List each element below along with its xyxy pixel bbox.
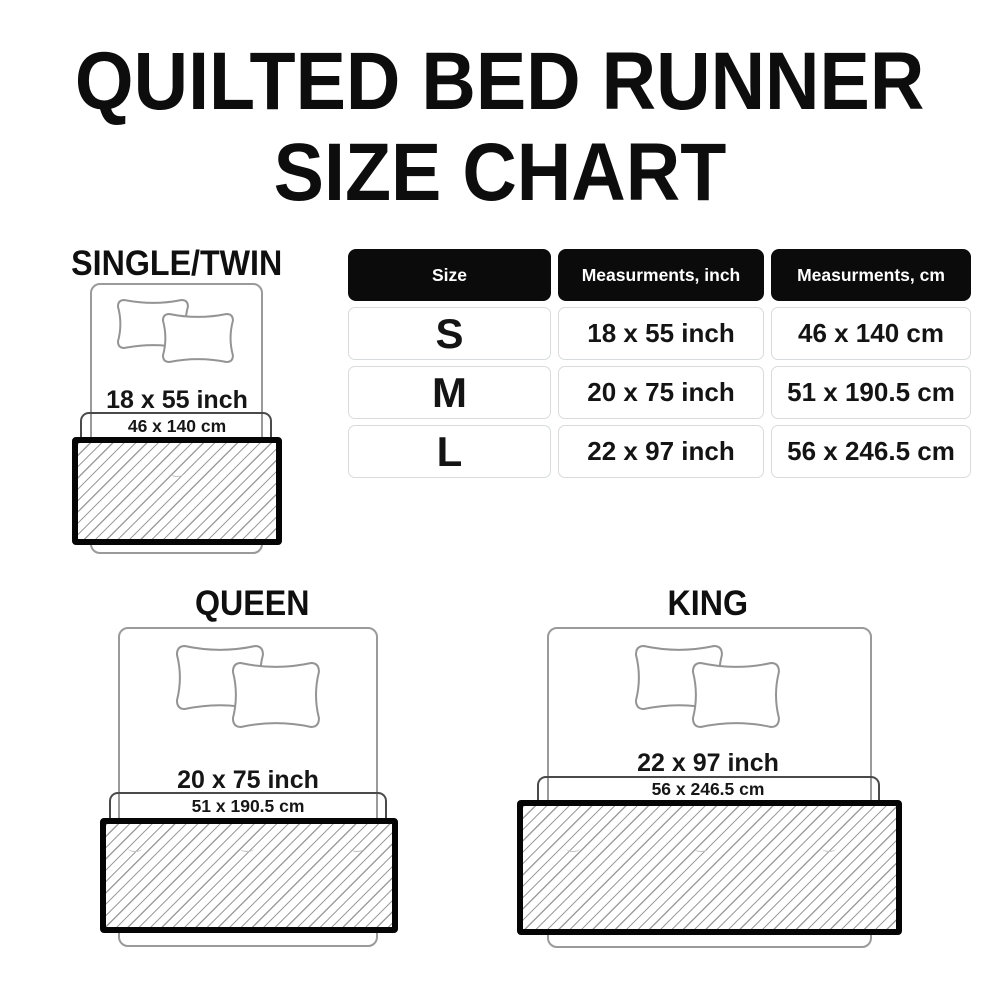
table-cell-inch-l: 22 x 97 inch <box>558 425 764 478</box>
stitch-mark <box>566 845 580 852</box>
table-cell-size-s: S <box>348 307 551 360</box>
table-cell-inch-m: 20 x 75 inch <box>558 366 764 419</box>
bed-runner-graphic <box>100 818 398 933</box>
table-cell-inch-s: 18 x 55 inch <box>558 307 764 360</box>
pillow-icon <box>170 639 330 733</box>
cm-measurement-label: 46 x 140 cm <box>77 416 277 436</box>
table-cell-size-m: M <box>348 366 551 419</box>
table-cell-cm-s: 46 x 140 cm <box>771 307 971 360</box>
stitch-mark <box>170 470 184 477</box>
table-cell-cm-m: 51 x 190.5 cm <box>771 366 971 419</box>
page-title-line-2: SIZE CHART <box>0 127 1000 218</box>
pillow-icon <box>629 639 789 733</box>
stitch-mark <box>128 845 142 852</box>
stitch-mark <box>240 845 254 852</box>
stitch-mark <box>822 845 836 852</box>
page-title: QUILTED BED RUNNER SIZE CHART <box>0 36 1000 218</box>
page-title-line-1: QUILTED BED RUNNER <box>0 36 1000 127</box>
cm-measurement-label: 51 x 190.5 cm <box>148 796 348 816</box>
section-label: SINGLE/TWIN <box>47 246 307 282</box>
pillow-icon <box>110 292 240 370</box>
size-table: Size Measurments, inch Measurments, cm S… <box>348 249 971 478</box>
cm-measurement-label: 56 x 246.5 cm <box>608 779 808 799</box>
inch-measurement-label: 22 x 97 inch <box>608 749 808 777</box>
stitch-mark <box>694 845 708 852</box>
stitch-mark <box>350 845 364 852</box>
inch-measurement-label: 20 x 75 inch <box>148 766 348 794</box>
section-label: KING <box>578 586 838 622</box>
table-cell-size-l: L <box>348 425 551 478</box>
table-header-inch: Measurments, inch <box>558 249 764 301</box>
bed-runner-graphic <box>517 800 902 935</box>
inch-measurement-label: 18 x 55 inch <box>77 386 277 414</box>
section-label: QUEEN <box>122 586 382 622</box>
bed-runner-graphic <box>72 437 282 545</box>
size-chart-page: QUILTED BED RUNNER SIZE CHART SINGLE/TWI… <box>0 0 1000 1000</box>
table-header-cm: Measurments, cm <box>771 249 971 301</box>
table-header-size: Size <box>348 249 551 301</box>
table-cell-cm-l: 56 x 246.5 cm <box>771 425 971 478</box>
